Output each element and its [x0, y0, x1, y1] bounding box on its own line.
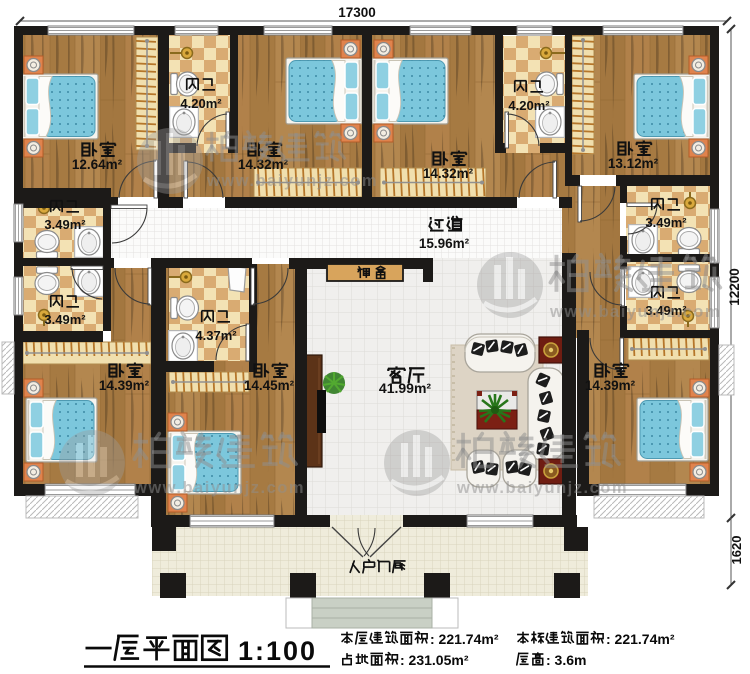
svg-text:www.baiyunjz.com: www.baiyunjz.com [549, 303, 721, 321]
svg-text:: 221.74m²: : 221.74m² [430, 631, 499, 647]
svg-text:3.49m²: 3.49m² [44, 217, 86, 232]
svg-text:: 221.74m²: : 221.74m² [606, 631, 675, 647]
svg-text:12200: 12200 [727, 268, 742, 306]
svg-text:1:100: 1:100 [238, 636, 317, 666]
svg-text:www.baiyunjz.com: www.baiyunjz.com [456, 479, 628, 497]
svg-text:14.32m²: 14.32m² [238, 157, 289, 172]
svg-text:: 3.6m: : 3.6m [546, 652, 586, 668]
svg-text:13.12m²: 13.12m² [608, 156, 659, 171]
svg-text:14.39m²: 14.39m² [585, 378, 636, 393]
svg-text:4.37m²: 4.37m² [195, 328, 237, 343]
svg-text:: 231.05m²: : 231.05m² [400, 652, 469, 668]
svg-text:15.96m²: 15.96m² [419, 236, 470, 251]
svg-text:3.49m²: 3.49m² [645, 215, 687, 230]
svg-text:14.39m²: 14.39m² [99, 378, 150, 393]
svg-text:17300: 17300 [338, 5, 376, 20]
svg-text:4.20m²: 4.20m² [180, 96, 222, 111]
svg-text:14.45m²: 14.45m² [244, 378, 295, 393]
svg-text:41.99m²: 41.99m² [379, 380, 431, 396]
svg-text:4.20m²: 4.20m² [508, 98, 550, 113]
svg-text:www.baiyunjz.com: www.baiyunjz.com [133, 479, 305, 497]
svg-text:12.64m²: 12.64m² [72, 157, 123, 172]
svg-text:www.baiyunjz.com: www.baiyunjz.com [206, 172, 378, 190]
svg-text:14.32m²: 14.32m² [423, 166, 474, 181]
svg-text:3.49m²: 3.49m² [44, 312, 86, 327]
svg-text:1620: 1620 [729, 536, 744, 565]
